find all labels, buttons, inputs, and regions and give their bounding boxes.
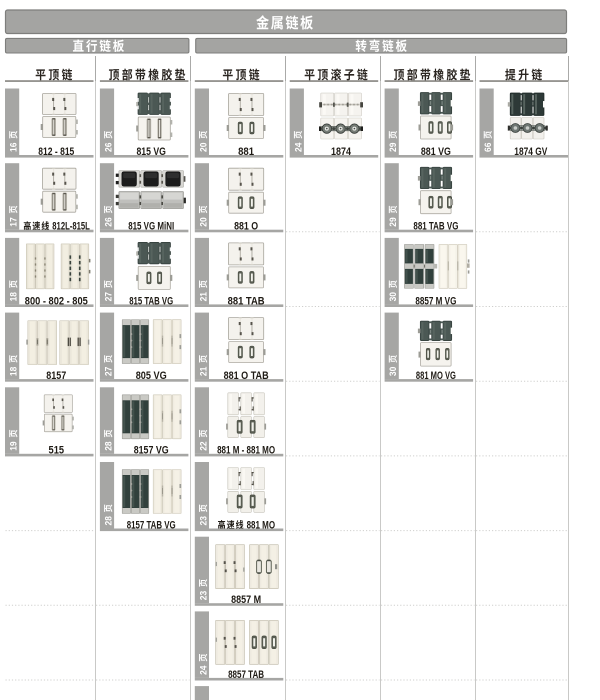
svg-text:18: 18: [9, 292, 19, 301]
svg-text:28: 28: [104, 441, 114, 450]
svg-text:18: 18: [9, 367, 19, 376]
svg-text:23: 23: [198, 516, 208, 525]
svg-text:27: 27: [104, 367, 114, 376]
svg-text:21: 21: [198, 367, 208, 376]
svg-text:29: 29: [388, 217, 398, 226]
svg-text:20: 20: [198, 217, 208, 226]
svg-text:27: 27: [104, 292, 114, 301]
svg-text:20: 20: [198, 143, 208, 152]
svg-text:24: 24: [293, 142, 303, 152]
svg-text:29: 29: [388, 143, 398, 152]
svg-text:23: 23: [198, 591, 208, 600]
svg-text:22: 22: [198, 441, 208, 450]
svg-text:16: 16: [9, 143, 19, 152]
svg-text:21: 21: [198, 292, 208, 301]
svg-text:28: 28: [104, 516, 114, 525]
svg-text:19: 19: [9, 441, 19, 450]
svg-text:66: 66: [483, 143, 493, 152]
svg-text:26: 26: [104, 143, 114, 152]
svg-text:17: 17: [9, 217, 19, 226]
svg-text:24: 24: [198, 665, 208, 675]
svg-text:30: 30: [388, 292, 398, 301]
svg-text:26: 26: [104, 217, 114, 226]
svg-text:30: 30: [388, 367, 398, 376]
